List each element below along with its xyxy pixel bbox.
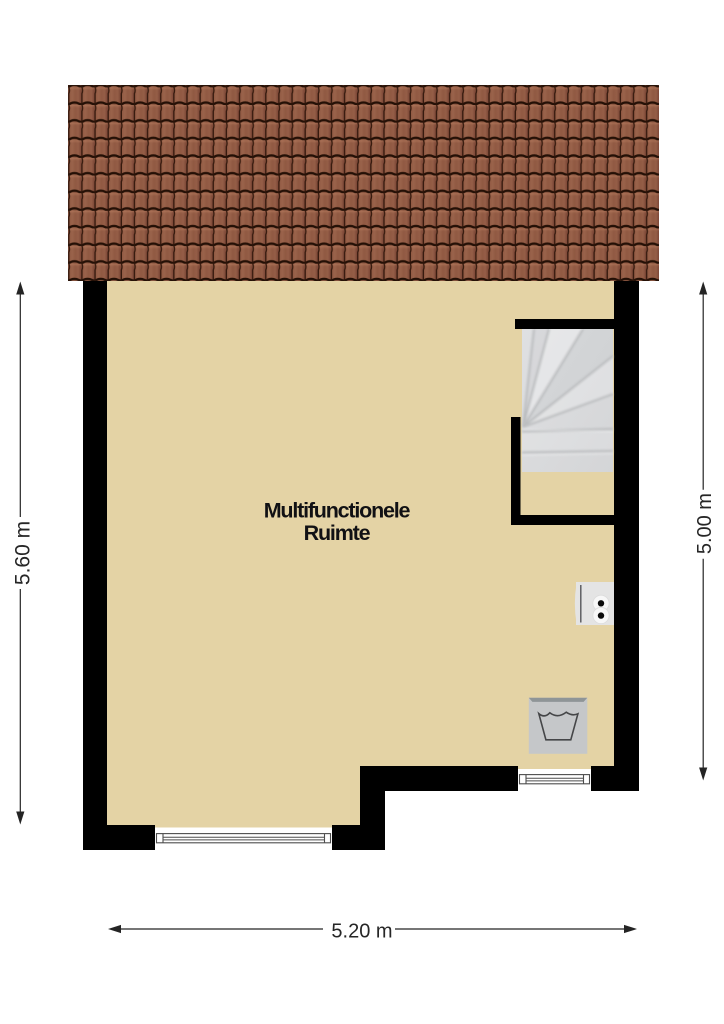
svg-text:Ruimte: Ruimte bbox=[304, 521, 371, 545]
svg-text:5.60 m: 5.60 m bbox=[12, 521, 35, 585]
svg-text:5.00 m: 5.00 m bbox=[694, 493, 716, 554]
svg-text:Multifunctionele: Multifunctionele bbox=[264, 498, 411, 522]
svg-text:5.20 m: 5.20 m bbox=[331, 920, 392, 942]
